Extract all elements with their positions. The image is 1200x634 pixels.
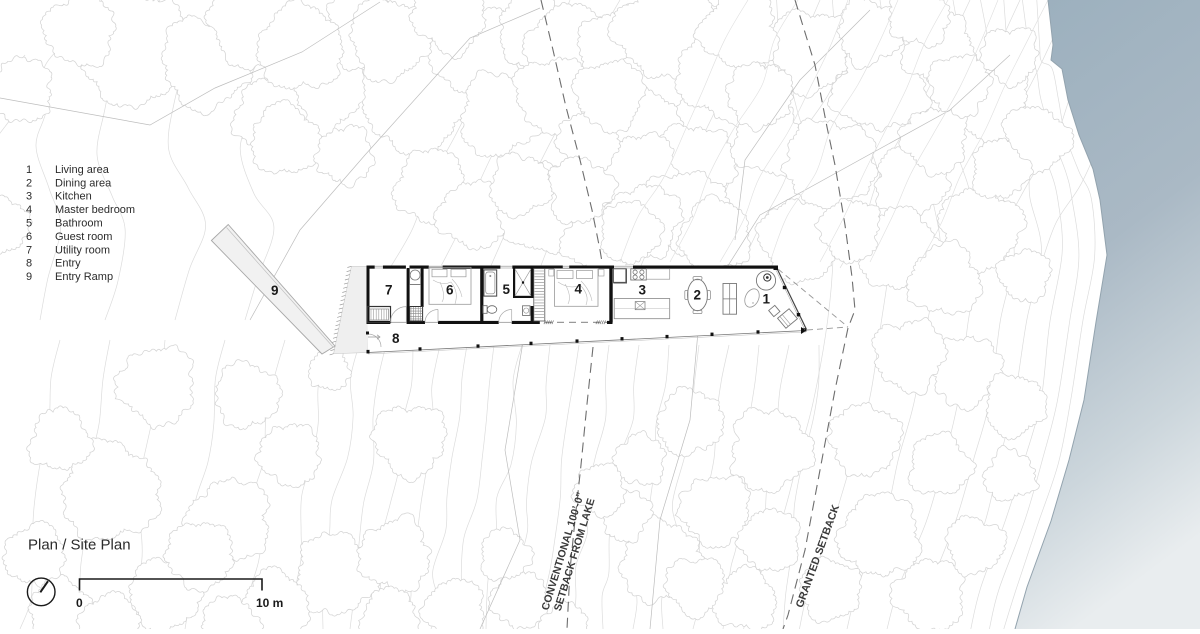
- svg-text:4: 4: [575, 282, 583, 297]
- svg-text:Dining area: Dining area: [55, 177, 112, 189]
- svg-text:8: 8: [392, 331, 400, 346]
- svg-text:Bathroom: Bathroom: [55, 218, 103, 230]
- svg-text:Entry: Entry: [55, 258, 81, 270]
- svg-text:1: 1: [763, 292, 771, 307]
- svg-text:Living area: Living area: [55, 164, 110, 176]
- svg-text:7: 7: [26, 244, 32, 256]
- svg-text:6: 6: [446, 283, 454, 298]
- svg-text:5: 5: [503, 282, 511, 297]
- svg-text:6: 6: [26, 231, 32, 243]
- svg-text:1: 1: [26, 164, 32, 176]
- svg-text:2: 2: [694, 288, 702, 303]
- svg-text:8: 8: [26, 258, 32, 270]
- svg-text:Plan / Site Plan: Plan / Site Plan: [28, 537, 131, 554]
- svg-text:7: 7: [385, 283, 393, 298]
- svg-text:Guest room: Guest room: [55, 231, 112, 243]
- svg-text:Kitchen: Kitchen: [55, 191, 92, 203]
- svg-text:3: 3: [639, 283, 647, 298]
- svg-text:10 m: 10 m: [256, 596, 283, 610]
- svg-text:0: 0: [76, 596, 83, 610]
- svg-text:9: 9: [271, 283, 279, 298]
- svg-text:Master bedroom: Master bedroom: [55, 204, 135, 216]
- svg-text:4: 4: [26, 204, 32, 216]
- svg-text:2: 2: [26, 177, 32, 189]
- svg-text:Utility room: Utility room: [55, 244, 110, 256]
- svg-text:9: 9: [26, 271, 32, 283]
- svg-text:Entry Ramp: Entry Ramp: [55, 271, 113, 283]
- svg-text:3: 3: [26, 191, 32, 203]
- svg-text:5: 5: [26, 218, 32, 230]
